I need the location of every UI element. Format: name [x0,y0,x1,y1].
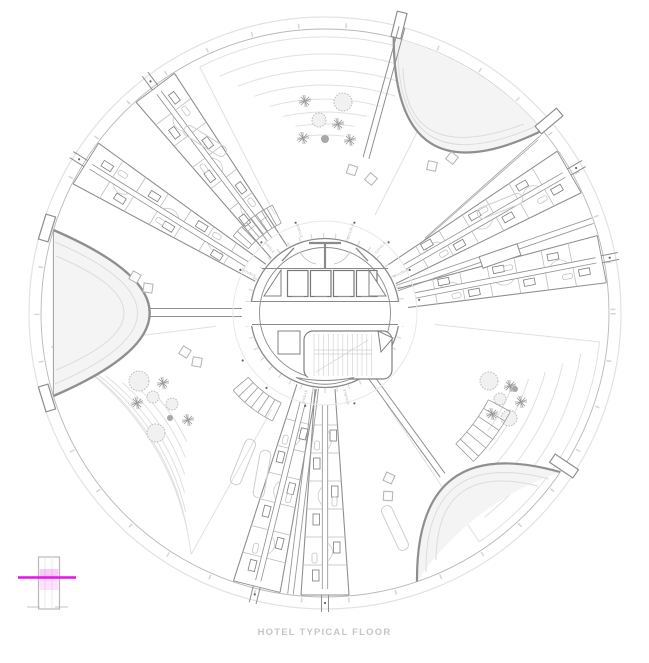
round-tree-icon [480,372,498,390]
star-tree-icon [182,414,194,426]
room-label: DOUBLE [241,268,258,279]
ramp-lower-left [233,377,281,421]
wing-right-upper [379,143,596,296]
room-label: DOUBLE [393,267,410,278]
central-core: DOUBLE SINGLE SINGLE DOUBLE SINGLE DOUBL… [233,221,417,405]
star-tree-icon [332,118,344,130]
round-tree-icon [512,386,518,392]
round-tree-icon [147,424,165,442]
round-tree-icon [312,113,326,127]
star-tree-icon [515,396,527,408]
service-room [278,331,300,354]
floor-plan-drawing: DOUBLE SINGLE SINGLE DOUBLE SINGLE DOUBL… [0,0,649,663]
core-door-west [242,302,258,326]
round-tree-icon [321,135,329,143]
room-label: SINGLE [295,223,303,239]
star-tree-icon [344,134,356,146]
garden-southeast [387,325,600,542]
fan-southeast [369,375,579,582]
fan-northeast [363,11,563,242]
room-label: DOUBLE [346,222,355,239]
tree-cluster-southeast [480,372,527,426]
round-tree-icon [166,398,178,410]
tree-cluster-north [297,93,356,146]
tree-cluster-southwest [129,371,194,442]
section-level-marker [18,557,76,609]
core-door-east [392,302,408,326]
round-tree-icon [494,393,506,405]
wing-south [301,389,349,612]
round-tree-icon [334,93,352,111]
room-label: SINGLE [374,240,387,254]
star-tree-icon [297,132,309,144]
floor-plan-canvas: DOUBLE SINGLE SINGLE DOUBLE SINGLE DOUBL… [0,0,649,663]
corridor-southeast [369,375,446,478]
star-tree-icon [299,95,311,107]
room-label: DOUBLE [342,388,350,405]
corridor-west [150,309,252,317]
level-highlight-band-lower [40,579,59,590]
round-tree-icon [147,391,159,403]
room-label: SINGLE [263,241,276,255]
room-label: SINGLE [301,389,308,405]
round-tree-icon [129,371,149,391]
ramp-lower-right [456,400,511,462]
round-tree-icon [167,415,173,421]
corridor-alcove [479,244,521,268]
star-tree-icon [157,377,169,389]
drawing-caption: HOTEL TYPICAL FLOOR [0,627,649,638]
